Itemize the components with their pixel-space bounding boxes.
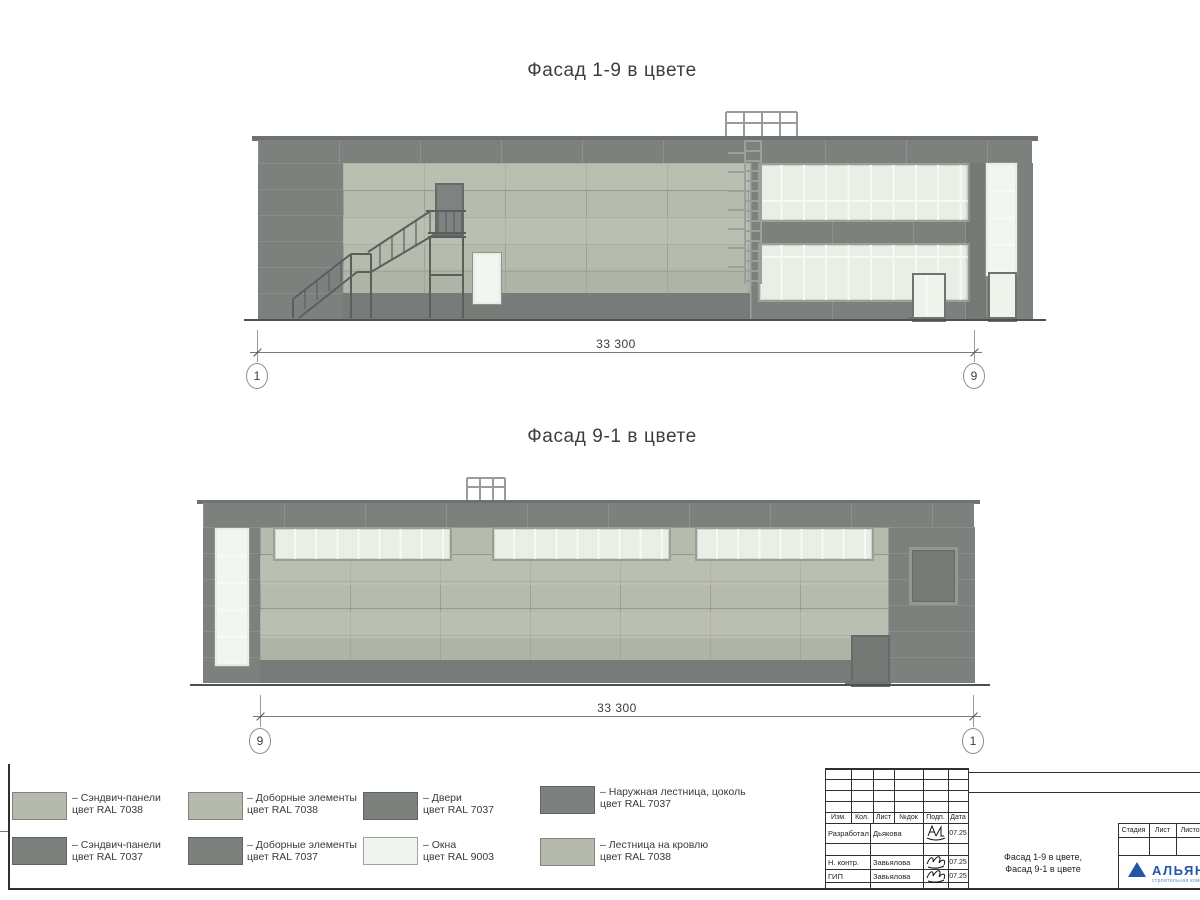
title-block-line xyxy=(1118,837,1200,838)
legend-line2: цвет RAL 7037 xyxy=(247,851,318,863)
window-separators xyxy=(988,165,1015,274)
facade2-grid-bubble-right: 1 xyxy=(962,728,984,754)
facade1-dimension-value: 33 300 xyxy=(596,337,636,351)
rev-header-izm: Изм. xyxy=(826,812,851,823)
legend-line1: – Лестница на кровлю xyxy=(600,839,708,851)
facade2-dimension-line xyxy=(253,716,981,717)
legend-line2: цвет RAL 7037 xyxy=(72,851,143,863)
legend-line1: – Доборные элементы xyxy=(247,839,357,851)
legend-swatch xyxy=(363,792,418,820)
legend-line1: – Сэндвич-панели xyxy=(72,839,161,851)
legend-line1: – Окна xyxy=(423,839,456,851)
title-block-line xyxy=(826,779,968,780)
legend-swatch xyxy=(188,792,243,820)
window-transom xyxy=(760,256,968,258)
title-block-line xyxy=(826,801,968,802)
doc-title-line1: Фасад 1-9 в цвете, xyxy=(1004,852,1082,862)
legend-label: – Сэндвич-панелицвет RAL 7038 xyxy=(72,793,161,816)
title-block-line xyxy=(968,792,1200,793)
title-block-line xyxy=(923,823,924,888)
sheets-header: Листов xyxy=(1176,824,1200,836)
signer-date: 07.25 xyxy=(948,825,968,841)
legend-line1: – Двери xyxy=(423,792,462,804)
facade2-window-band-2 xyxy=(492,527,671,561)
extension-line xyxy=(260,695,261,727)
signer-name: Завьялова xyxy=(871,856,923,868)
facade1-corner-window xyxy=(986,163,1017,276)
signer-name: Дьякова xyxy=(871,825,923,841)
title-block-line xyxy=(826,768,968,770)
facade2-drawing xyxy=(203,503,974,683)
legend-line1: – Доборные элементы xyxy=(247,792,357,804)
legend-label: – Доборные элементыцвет RAL 7038 xyxy=(247,793,357,816)
facade1-wall-ladder xyxy=(744,140,762,284)
legend-swatch xyxy=(12,792,67,820)
legend: – Сэндвич-панелицвет RAL 7038 – Сэндвич-… xyxy=(0,780,830,880)
logo-text: АЛЬЯНС xyxy=(1152,863,1200,878)
facade1-title: Фасад 1-9 в цвете xyxy=(527,60,697,82)
facade1-ground-line xyxy=(244,319,1046,321)
legend-line2: цвет RAL 7037 xyxy=(423,804,494,816)
drawing-sheet: { "facade1": { "title": "Фасад 1-9 в цве… xyxy=(0,0,1200,900)
title-block-line xyxy=(826,843,968,844)
facade2-title: Фасад 9-1 в цвете xyxy=(527,426,697,448)
extension-line xyxy=(257,330,258,362)
facade2-service-door xyxy=(851,635,890,687)
window-transom xyxy=(760,200,968,202)
facade2-corner-window xyxy=(215,528,249,666)
window-mullions xyxy=(760,165,968,220)
legend-swatch xyxy=(363,837,418,865)
legend-label: – Окнацвет RAL 9003 xyxy=(423,840,494,863)
facade2-grid-bubble-left: 9 xyxy=(249,728,271,754)
doc-title-line2: Фасад 9-1 в цвете xyxy=(1005,864,1080,874)
logo-cell: АЛЬЯНС строительная компания xyxy=(1122,860,1200,886)
legend-label: – Наружная лестница, цокольцвет RAL 7037 xyxy=(600,787,746,810)
legend-swatch xyxy=(12,837,67,865)
panel-row-tint xyxy=(260,612,888,638)
rev-header-data: Дата xyxy=(948,812,968,823)
window-mullions xyxy=(494,529,669,559)
signature-icon xyxy=(925,869,947,883)
legend-label: – Сэндвич-панелицвет RAL 7037 xyxy=(72,840,161,863)
facade1-corner-door xyxy=(988,272,1017,322)
rev-header-podp: Подп. xyxy=(923,812,948,823)
title-block-line xyxy=(1118,855,1200,856)
facade2-top-band xyxy=(203,503,974,527)
facade2-ground-line xyxy=(190,684,990,686)
signer-date: 07.25 xyxy=(948,856,968,868)
legend-line2: цвет RAL 7038 xyxy=(247,804,318,816)
facade1-dimension-line xyxy=(250,352,982,353)
legend-swatch xyxy=(188,837,243,865)
legend-label: – Дверицвет RAL 7037 xyxy=(423,793,494,816)
facade1-corner-trim xyxy=(965,163,987,320)
facade2-plinth xyxy=(260,660,888,683)
window-mullions xyxy=(275,529,450,559)
signer-role: Н. контр. xyxy=(826,856,872,868)
sheet-header: Лист xyxy=(1149,824,1176,836)
signer-name: Завьялова xyxy=(871,870,923,882)
legend-line2: цвет RAL 7038 xyxy=(600,851,671,863)
signature-icon xyxy=(925,824,947,842)
signer-date: 07.25 xyxy=(948,870,968,882)
rev-header-ndok: №док xyxy=(894,812,923,823)
alliance-logo-icon xyxy=(1128,862,1146,877)
stage-header: Стадия xyxy=(1118,824,1149,836)
facade1-external-stair xyxy=(280,175,480,325)
signature-icon xyxy=(925,855,947,869)
doc-title: Фасад 1-9 в цвете, Фасад 9-1 в цвете xyxy=(968,852,1118,875)
rev-header-kol: Кол. xyxy=(851,812,873,823)
legend-swatch xyxy=(540,786,595,814)
rev-header-list: Лист xyxy=(873,812,894,823)
panel-row-tint xyxy=(260,638,888,660)
legend-line1: – Сэндвич-панели xyxy=(72,792,161,804)
signer-role: Разработал xyxy=(826,825,872,841)
facade1-grid-bubble-left: 1 xyxy=(246,363,268,389)
facade1-grid-bubble-right: 9 xyxy=(963,363,985,389)
facade1-upper-window-band xyxy=(758,163,970,222)
window-mullions xyxy=(697,529,872,559)
legend-line2: цвет RAL 7038 xyxy=(72,804,143,816)
legend-line2: цвет RAL 7037 xyxy=(600,798,671,810)
ladder-safety-hooks xyxy=(728,152,744,284)
legend-label: – Доборные элементыцвет RAL 7037 xyxy=(247,840,357,863)
extension-line xyxy=(974,330,975,362)
sheet-frame-bottom xyxy=(8,888,1200,890)
title-block-line xyxy=(826,790,968,791)
legend-label: – Лестница на кровлюцвет RAL 7038 xyxy=(600,840,708,863)
facade2-window-band-1 xyxy=(273,527,452,561)
facade2-dimension-value: 33 300 xyxy=(597,701,637,715)
title-block: Изм. Кол. Лист №док Подп. Дата Разработа… xyxy=(825,768,1200,888)
facade1-entrance-door xyxy=(912,273,946,322)
legend-swatch xyxy=(540,838,595,866)
door-mullion xyxy=(926,275,928,316)
legend-line1: – Наружная лестница, цоколь xyxy=(600,786,746,798)
facade2-window-band-3 xyxy=(695,527,874,561)
facade2-framed-panel xyxy=(909,547,958,605)
facade1-top-band xyxy=(258,140,1032,163)
signer-role: ГИП xyxy=(826,870,872,882)
extension-line xyxy=(973,695,974,727)
legend-line2: цвет RAL 9003 xyxy=(423,851,494,863)
title-block-line xyxy=(968,772,1200,773)
logo-subtext: строительная компания xyxy=(1152,878,1200,884)
window-separators xyxy=(217,530,247,664)
